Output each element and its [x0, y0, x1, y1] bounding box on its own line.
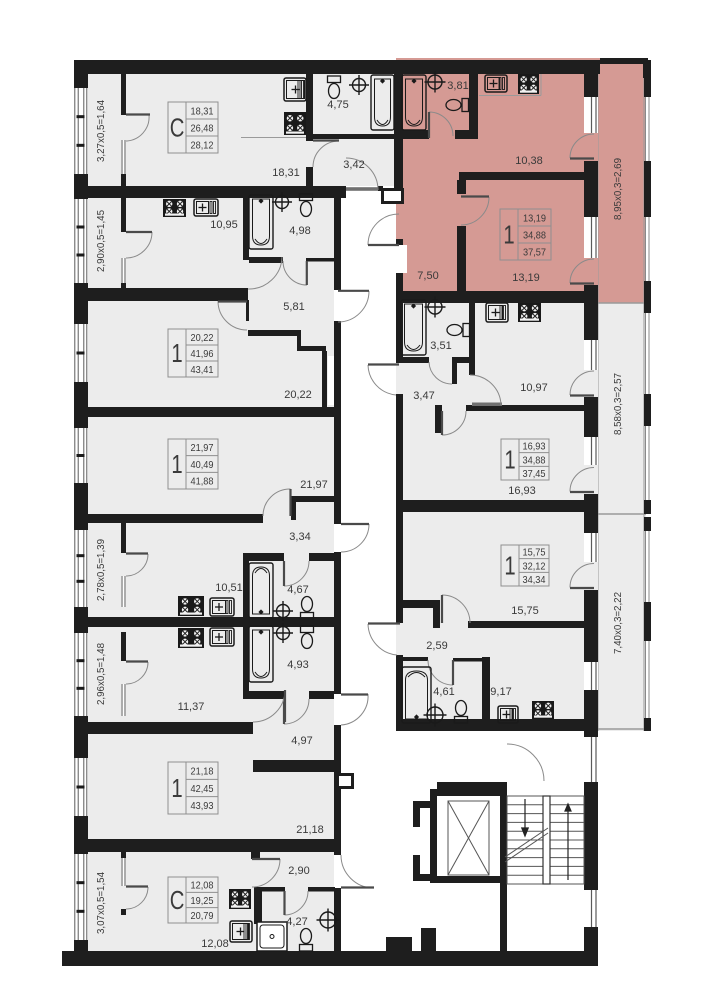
svg-text:C: C — [170, 886, 185, 915]
svg-text:10,51: 10,51 — [215, 582, 243, 594]
svg-text:1: 1 — [171, 450, 182, 479]
svg-text:8,95x0,3=2,69: 8,95x0,3=2,69 — [613, 158, 624, 220]
svg-text:20,22: 20,22 — [191, 332, 214, 344]
svg-text:3,81: 3,81 — [447, 80, 468, 92]
svg-text:2,78x0,5=1,39: 2,78x0,5=1,39 — [96, 539, 107, 601]
svg-text:13,19: 13,19 — [512, 272, 540, 284]
svg-text:8,58x0,3=2,57: 8,58x0,3=2,57 — [613, 373, 624, 435]
svg-text:26,48: 26,48 — [191, 122, 214, 134]
svg-text:3,42: 3,42 — [343, 159, 364, 171]
svg-text:3,27x0,5=1,64: 3,27x0,5=1,64 — [96, 100, 107, 162]
svg-text:10,38: 10,38 — [515, 155, 543, 167]
svg-text:16,93: 16,93 — [508, 485, 536, 497]
svg-text:4,75: 4,75 — [327, 99, 348, 111]
svg-text:21,18: 21,18 — [191, 765, 214, 777]
svg-text:43,93: 43,93 — [191, 800, 214, 812]
svg-text:18,31: 18,31 — [191, 105, 214, 117]
svg-text:3,47: 3,47 — [413, 390, 434, 402]
svg-text:7,50: 7,50 — [417, 270, 438, 282]
svg-text:28,12: 28,12 — [191, 139, 214, 151]
svg-text:3,34: 3,34 — [289, 531, 310, 543]
svg-text:10,97: 10,97 — [520, 382, 548, 394]
svg-text:37,57: 37,57 — [523, 246, 546, 258]
svg-text:2,59: 2,59 — [426, 640, 447, 652]
svg-text:21,97: 21,97 — [300, 479, 328, 491]
svg-text:4,97: 4,97 — [291, 735, 312, 747]
svg-text:20,22: 20,22 — [284, 389, 312, 401]
svg-text:10,95: 10,95 — [210, 219, 238, 231]
svg-text:18,31: 18,31 — [272, 167, 300, 179]
svg-text:4,93: 4,93 — [287, 659, 308, 671]
svg-text:32,12: 32,12 — [523, 560, 546, 572]
svg-text:34,34: 34,34 — [523, 574, 546, 586]
svg-text:1: 1 — [504, 445, 515, 474]
svg-text:5,81: 5,81 — [283, 301, 304, 313]
svg-text:2,90: 2,90 — [288, 865, 309, 877]
svg-text:34,88: 34,88 — [523, 454, 546, 466]
svg-text:2,96x0,5=1,48: 2,96x0,5=1,48 — [96, 643, 107, 705]
svg-text:9,17: 9,17 — [490, 686, 511, 698]
svg-text:1: 1 — [171, 339, 182, 368]
svg-text:42,45: 42,45 — [191, 783, 214, 795]
svg-text:21,97: 21,97 — [191, 442, 214, 454]
svg-text:4,61: 4,61 — [433, 686, 454, 698]
svg-text:40,49: 40,49 — [191, 459, 214, 471]
svg-text:1: 1 — [503, 220, 514, 249]
svg-text:41,96: 41,96 — [191, 348, 214, 360]
svg-text:7,40x0,3=2,22: 7,40x0,3=2,22 — [613, 592, 624, 654]
svg-text:19,25: 19,25 — [191, 895, 214, 907]
svg-text:3,07x0,5=1,54: 3,07x0,5=1,54 — [96, 872, 107, 934]
svg-text:16,93: 16,93 — [523, 441, 546, 453]
svg-text:20,79: 20,79 — [191, 910, 214, 922]
svg-text:34,88: 34,88 — [523, 229, 546, 241]
svg-text:11,37: 11,37 — [178, 701, 205, 713]
svg-text:3,51: 3,51 — [430, 340, 451, 352]
svg-text:4,27: 4,27 — [286, 916, 307, 928]
svg-text:1: 1 — [171, 774, 182, 803]
svg-text:21,18: 21,18 — [296, 824, 324, 836]
svg-text:12,08: 12,08 — [201, 938, 229, 950]
svg-text:2,90x0,5=1,45: 2,90x0,5=1,45 — [96, 210, 107, 272]
svg-text:1: 1 — [504, 551, 515, 580]
svg-text:4,98: 4,98 — [289, 225, 310, 237]
svg-text:15,75: 15,75 — [511, 605, 539, 617]
svg-text:15,75: 15,75 — [523, 547, 546, 559]
svg-text:12,08: 12,08 — [191, 879, 214, 891]
svg-text:13,19: 13,19 — [523, 212, 546, 224]
svg-text:43,41: 43,41 — [191, 364, 214, 376]
svg-text:4,67: 4,67 — [287, 584, 308, 596]
svg-text:41,88: 41,88 — [191, 475, 214, 487]
svg-text:C: C — [170, 113, 185, 142]
svg-text:37,45: 37,45 — [523, 468, 546, 480]
